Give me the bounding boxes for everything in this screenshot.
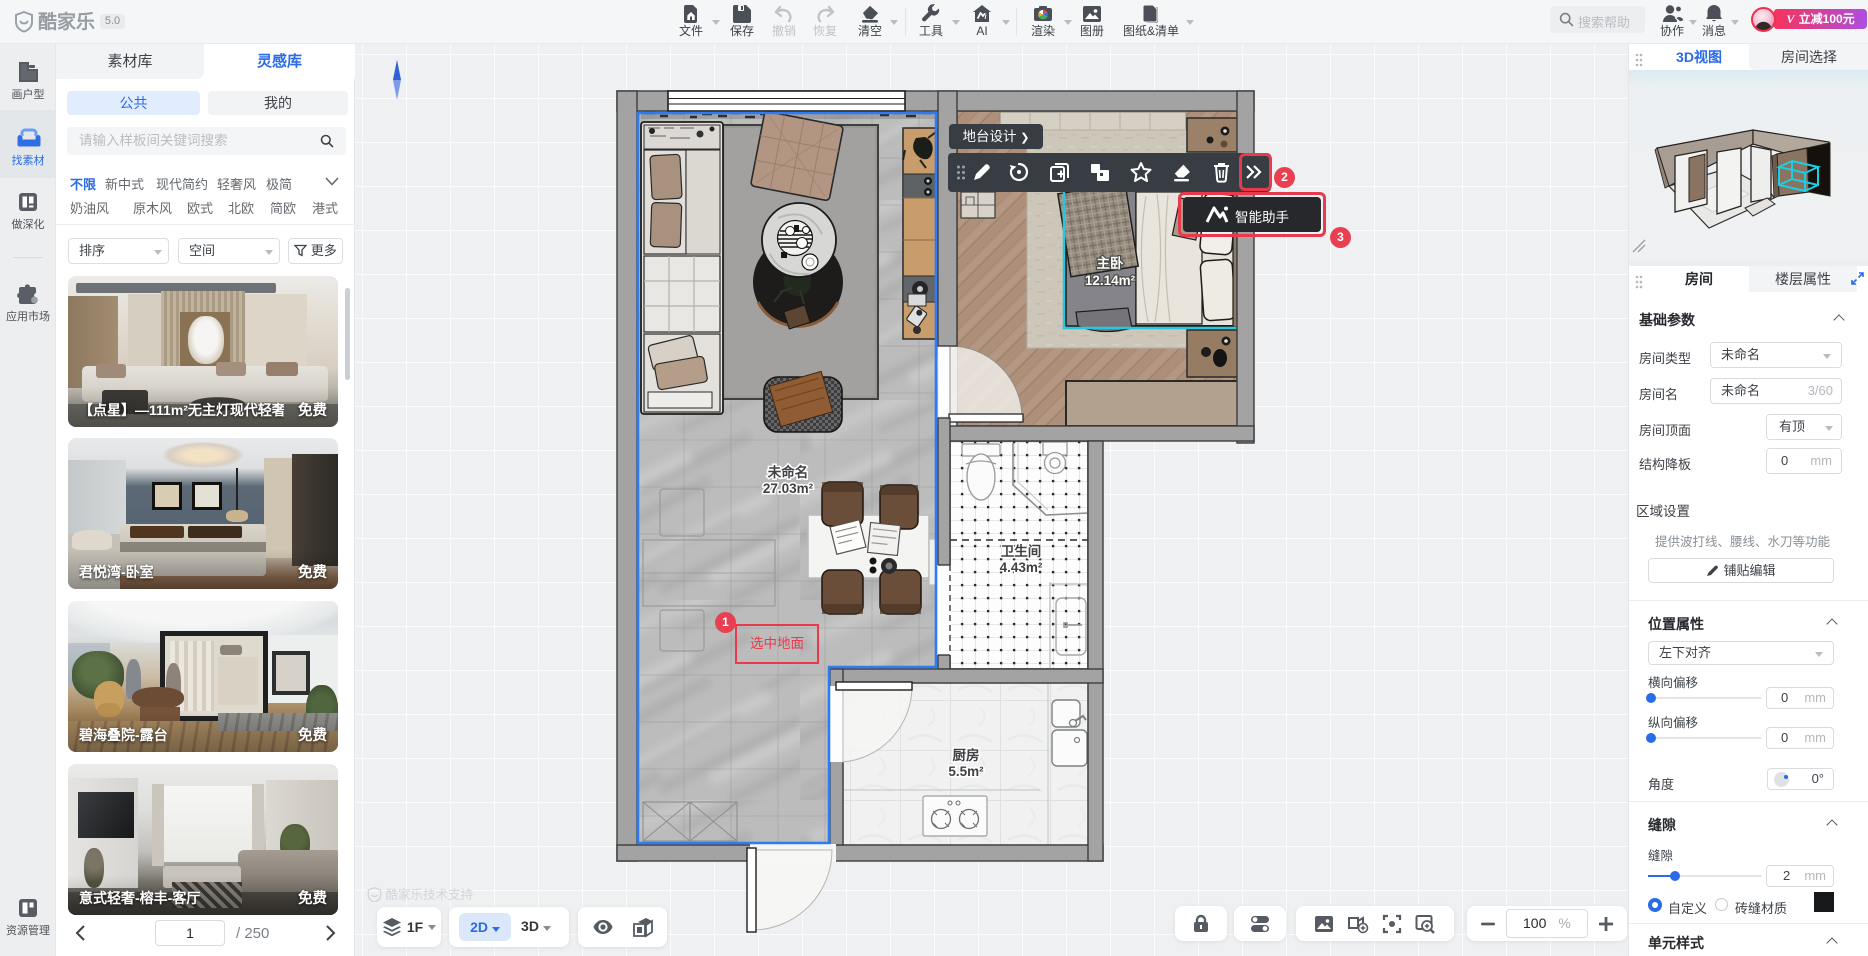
svg-text:卫生间: 卫生间: [1001, 543, 1042, 559]
svg-text:27.03m²: 27.03m²: [763, 481, 814, 496]
svg-text:厨房: 厨房: [953, 747, 980, 763]
svg-text:酷家乐: 酷家乐: [38, 11, 95, 33]
svg-text:4.43m²: 4.43m²: [1000, 560, 1043, 575]
svg-text:未命名: 未命名: [768, 464, 809, 480]
svg-text:5.5m²: 5.5m²: [948, 764, 984, 779]
svg-text:12.14m²: 12.14m²: [1085, 273, 1136, 288]
svg-text:主卧: 主卧: [1097, 255, 1125, 271]
